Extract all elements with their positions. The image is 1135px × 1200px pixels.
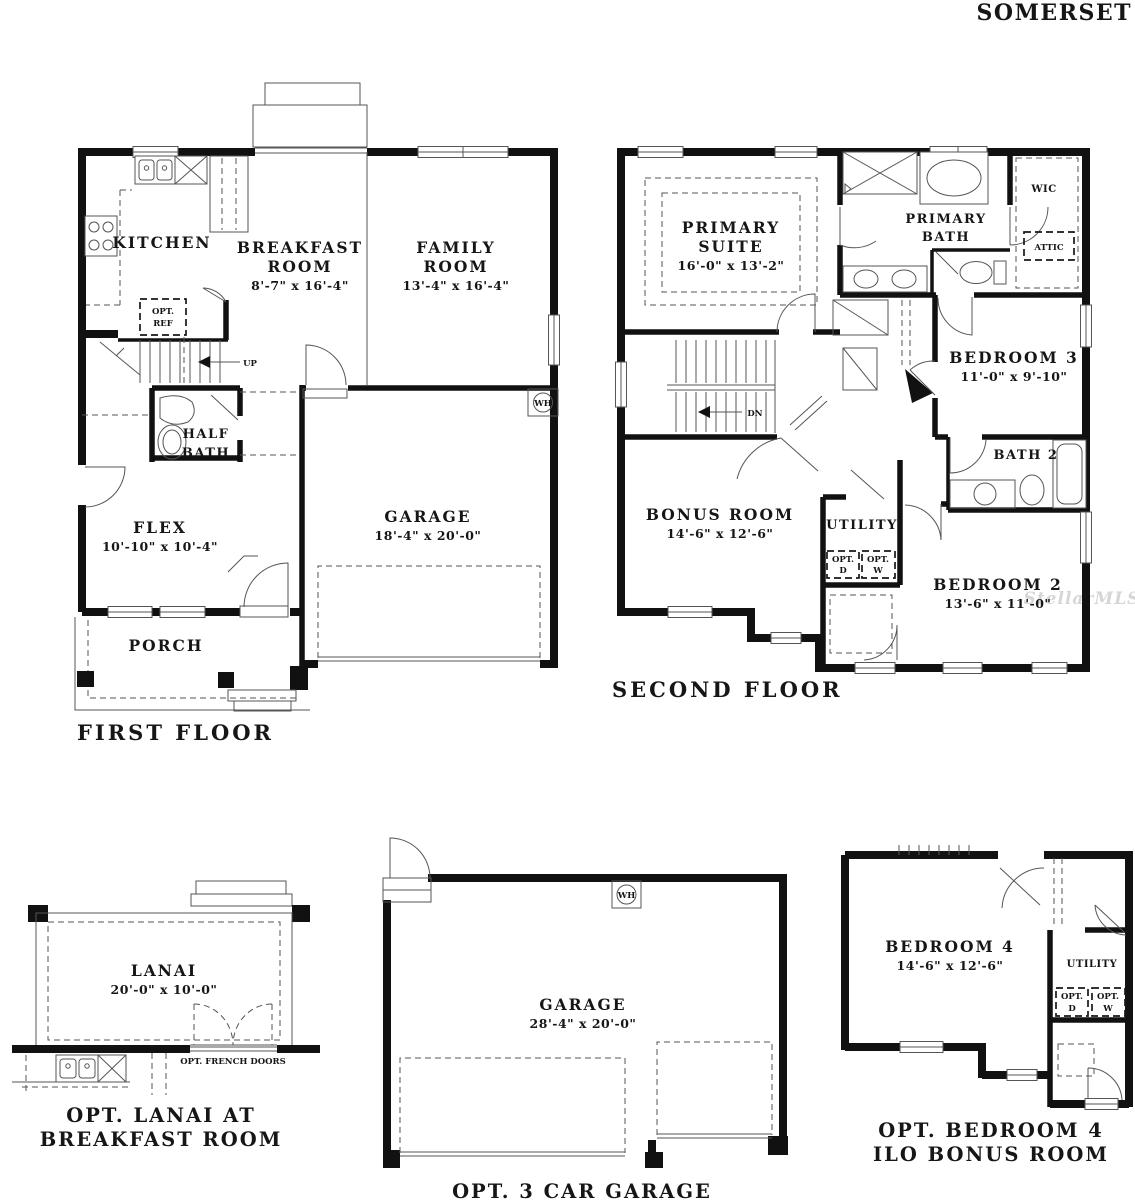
french-doors	[194, 1004, 272, 1045]
garage-door	[318, 566, 540, 661]
house-wall	[12, 1045, 320, 1051]
french-doors-label: OPT. FRENCH DOORS	[180, 1057, 285, 1067]
double-vanity	[843, 266, 927, 292]
room-dims-garage: 18'-4" x 20'-0"	[375, 528, 482, 543]
kitchen-sink	[56, 1055, 98, 1082]
room-dims-bedroom4: 14'-6" x 12'-6"	[897, 958, 1004, 973]
bedroom2-closet	[830, 595, 892, 653]
room-dims-lanai: 20'-0" x 10'-0"	[111, 982, 218, 997]
room-dims-garage3: 28'-4" x 20'-0"	[530, 1016, 637, 1031]
windows	[900, 1042, 1118, 1110]
utility-room: OPT. D OPT. W	[827, 551, 895, 578]
bathtub	[920, 152, 988, 204]
room-label-halfbath-2: BATH	[182, 446, 230, 461]
opt-bedroom4-plan: OPT. D OPT. W BEDROOM 4 14'-6" x 12'-6" …	[845, 845, 1133, 1166]
room-label-bedroom4: BEDROOM 4	[885, 937, 1015, 956]
room-dims-bedroom3: 11'-0" x 9'-10"	[961, 369, 1068, 384]
room-label-breakfast-1: BREAKFAST	[237, 238, 363, 257]
room-label-primarybath-1: PRIMARY	[905, 212, 986, 227]
room-label-bath2: BATH 2	[994, 448, 1059, 463]
wic-label: WIC	[1030, 184, 1056, 195]
linen-closets	[833, 300, 910, 390]
opt-washer-label-2: W	[1102, 1004, 1113, 1014]
second-floor-caption: SECOND FLOOR	[612, 677, 843, 702]
opt-bedroom4-caption-1: OPT. BEDROOM 4	[878, 1119, 1104, 1142]
stairs-down: DN	[667, 340, 775, 433]
opt-bedroom4-caption-2: ILO BONUS ROOM	[873, 1143, 1109, 1166]
stairs-up-label: UP	[243, 359, 257, 369]
opt-dryer-label-2: D	[1068, 1004, 1076, 1014]
bay-window	[191, 881, 292, 906]
second-floor-plan: DN WIC ATTIC	[612, 147, 1092, 703]
opt-lanai-caption-1: OPT. LANAI AT	[66, 1104, 256, 1127]
opt-dryer-label-2: D	[839, 566, 847, 576]
room-label-bedroom2: BEDROOM 2	[933, 575, 1063, 594]
room-label-primary-2: SUITE	[698, 237, 763, 256]
room-label-family-1: FAMILY	[416, 238, 496, 257]
doors	[1000, 868, 1126, 1100]
opt-3car-garage-plan: WH GARAGE 28'-4" x 20'-0" OPT. 3 CAR GAR…	[383, 838, 788, 1200]
garage-doors	[400, 1042, 772, 1156]
shower	[843, 152, 917, 194]
water-heater: WH	[612, 881, 641, 908]
entry-door	[383, 838, 431, 902]
bay-window	[253, 83, 367, 153]
first-floor-plan: UP OPT. REF	[75, 83, 560, 745]
opt-dryer-label-1: OPT.	[832, 555, 854, 565]
room-label-garage: GARAGE	[384, 507, 471, 526]
porch-structure	[75, 617, 310, 711]
room-label-kitchen: KITCHEN	[112, 233, 211, 252]
opt-ref-label-2: REF	[153, 319, 173, 329]
opt-lanai-plan: LANAI 20'-0" x 10'-0" OPT. FRENCH DOORS …	[12, 881, 320, 1151]
opt-dryer-label-1: OPT.	[1061, 992, 1083, 1002]
walk-in-closet: WIC ATTIC	[1016, 158, 1078, 288]
toilet	[960, 261, 1006, 284]
dishwasher	[98, 1055, 126, 1082]
attic-label: ATTIC	[1033, 243, 1063, 253]
wh-label: WH	[617, 891, 636, 901]
opt-lanai-caption-2: BREAKFAST ROOM	[40, 1128, 283, 1151]
room-label-halfbath-1: HALF	[183, 427, 230, 442]
room-label-bonus: BONUS ROOM	[646, 505, 794, 524]
room-label-family-2: ROOM	[423, 257, 488, 276]
room-label-utility: UTILITY	[826, 518, 898, 533]
opt-washer-label-1: OPT.	[1097, 992, 1119, 1002]
room-label-utility4: UTILITY	[1067, 959, 1118, 970]
room-label-lanai: LANAI	[131, 961, 197, 980]
dishwasher	[175, 156, 207, 184]
first-floor-caption: FIRST FLOOR	[77, 720, 274, 745]
opt-washer-label-1: OPT.	[867, 555, 889, 565]
room-dims-breakfast: 8'-7" x 16'-4"	[251, 278, 349, 293]
room-label-primary-1: PRIMARY	[682, 218, 780, 237]
room-dims-bedroom2: 13'-6" x 11'-0"	[945, 596, 1052, 611]
floor-plan-drawing: SOMERSET StellarMLS	[0, 0, 1135, 1200]
opt-garage-caption: OPT. 3 CAR GARAGE	[452, 1180, 712, 1200]
kitchen-sink	[135, 156, 175, 184]
interior-walls	[118, 152, 558, 668]
plan-title: SOMERSET	[977, 0, 1132, 26]
room-label-breakfast-2: ROOM	[267, 257, 332, 276]
room-dims-primary: 16'-0" x 13'-2"	[678, 258, 785, 273]
room-label-porch: PORCH	[128, 636, 203, 655]
floor-plan-sheet: SOMERSET StellarMLS	[0, 0, 1135, 1200]
stairs-down-label: DN	[747, 409, 762, 419]
room-label-flex: FLEX	[133, 518, 187, 537]
room-label-bedroom3: BEDROOM 3	[949, 348, 1079, 367]
room-label-primarybath-2: BATH	[922, 230, 970, 245]
room-dims-bonus: 14'-6" x 12'-6"	[667, 526, 774, 541]
wh-label: WH	[533, 399, 552, 409]
opt-ref-label-1: OPT.	[152, 307, 174, 317]
opt-washer-label-2: W	[872, 566, 883, 576]
stairs-up: UP	[100, 337, 258, 386]
room-dims-family: 13'-4" x 16'-4"	[403, 278, 510, 293]
room-label-garage3: GARAGE	[539, 995, 626, 1014]
room-dims-flex: 10'-10" x 10'-4"	[102, 539, 218, 554]
utility-room: OPT. D OPT. W	[1056, 988, 1125, 1016]
opt-refrigerator: OPT. REF	[140, 299, 186, 335]
